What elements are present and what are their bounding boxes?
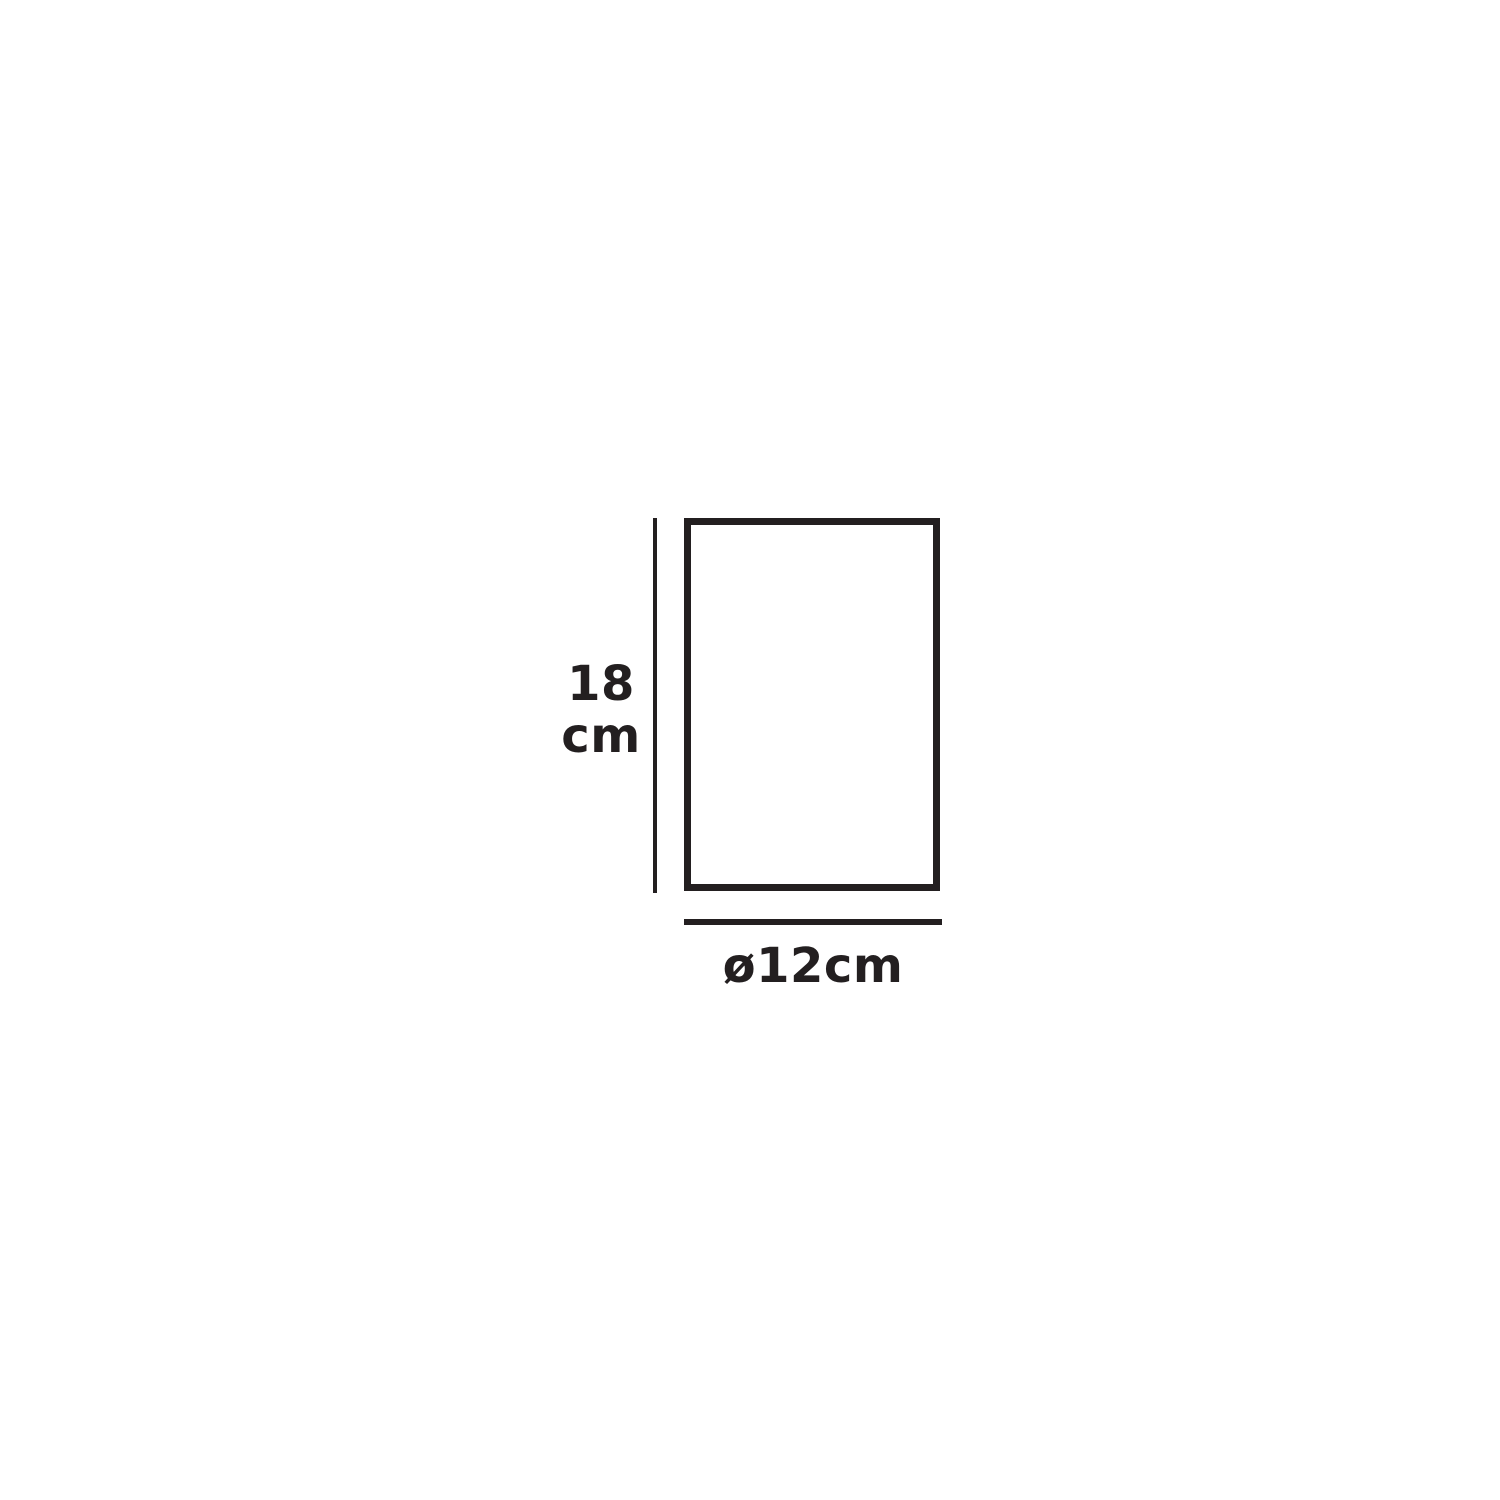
product-outline [684, 518, 940, 891]
dimension-diagram: 18 cm ø12cm [0, 0, 1500, 1500]
diameter-label: ø12cm [684, 940, 942, 992]
height-label: 18 cm [520, 658, 682, 762]
diameter-dimension-line [684, 919, 942, 925]
